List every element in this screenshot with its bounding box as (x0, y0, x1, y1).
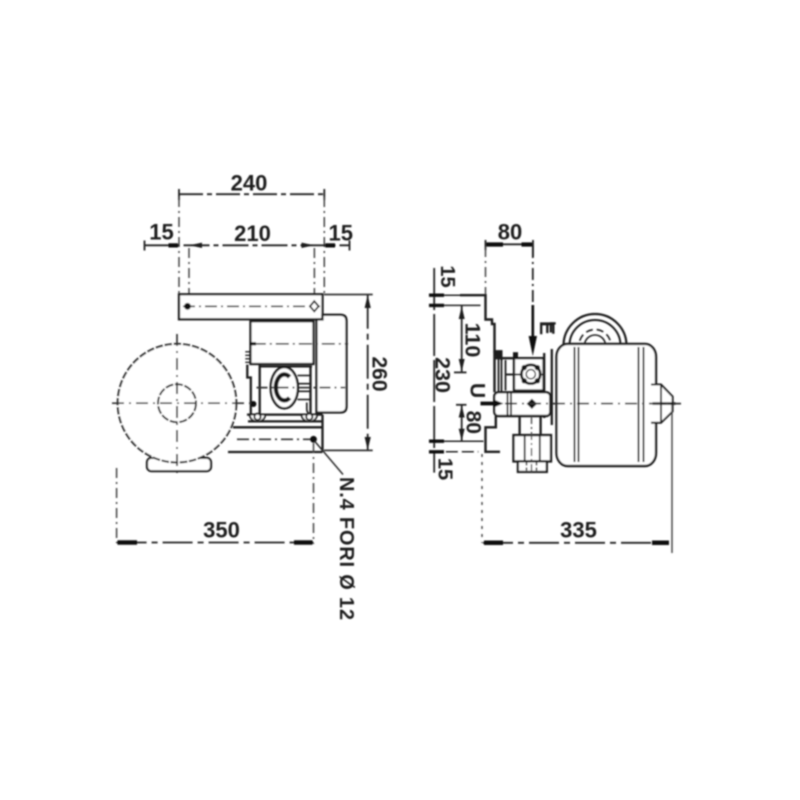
svg-text:210: 210 (234, 221, 271, 246)
svg-text:335: 335 (560, 518, 597, 543)
svg-text:N.4 FORI Ø 12: N.4 FORI Ø 12 (335, 477, 357, 621)
svg-text:80: 80 (462, 411, 485, 434)
svg-text:110: 110 (461, 323, 485, 358)
svg-text:80: 80 (498, 220, 522, 245)
svg-text:230: 230 (431, 357, 455, 393)
svg-text:260: 260 (368, 356, 391, 391)
svg-text:15: 15 (436, 265, 458, 287)
svg-text:15: 15 (434, 458, 456, 480)
svg-text:350: 350 (203, 518, 240, 543)
svg-text:240: 240 (231, 171, 268, 196)
svg-text:U: U (466, 383, 489, 398)
svg-text:15: 15 (149, 220, 173, 245)
